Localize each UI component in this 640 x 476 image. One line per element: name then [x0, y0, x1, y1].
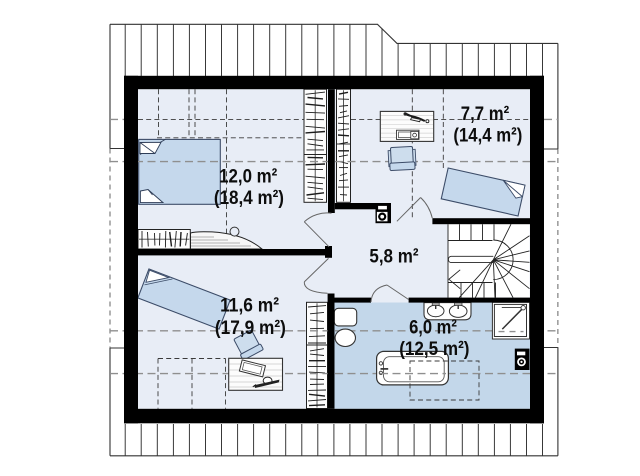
- svg-text:11,6 m²: 11,6 m²: [220, 295, 279, 317]
- svg-text:(18,4 m²): (18,4 m²): [214, 187, 284, 209]
- svg-text:(14,4 m²): (14,4 m²): [453, 125, 522, 147]
- svg-text:(17,9 m²): (17,9 m²): [215, 317, 286, 339]
- svg-text:5,8 m²: 5,8 m²: [369, 246, 418, 268]
- svg-text:7,7 m²: 7,7 m²: [461, 103, 510, 125]
- svg-text:12,0 m²: 12,0 m²: [219, 165, 278, 187]
- svg-text:(12,5 m²): (12,5 m²): [399, 338, 469, 360]
- svg-text:6,0 m²: 6,0 m²: [409, 317, 457, 339]
